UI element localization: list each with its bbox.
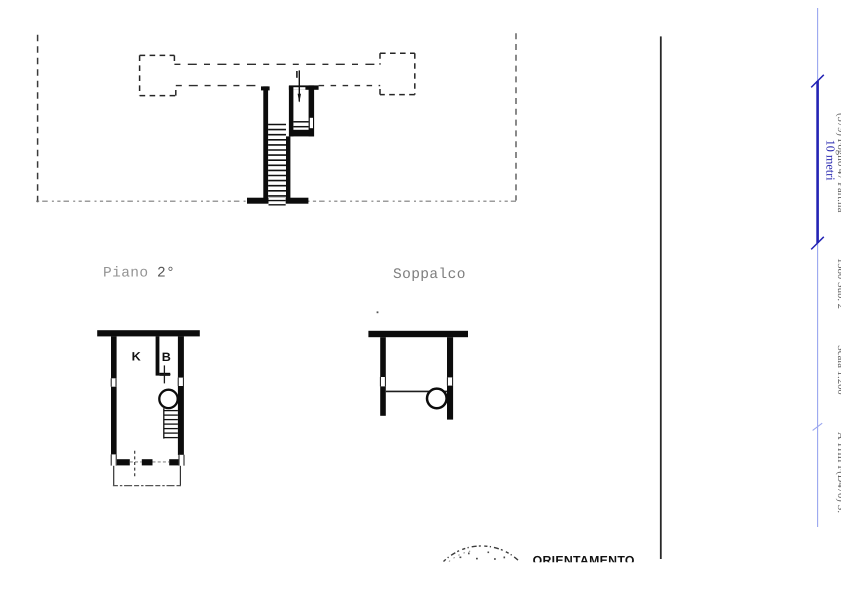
svg-text:(579) Foglio 47 Part.lla: (579) Foglio 47 Part.lla	[835, 113, 841, 213]
svg-text:Piano: Piano	[103, 266, 149, 282]
svg-text:B: B	[162, 350, 171, 363]
svg-text:K: K	[132, 350, 141, 363]
svg-text:Scala 1:200: Scala 1:200	[835, 345, 841, 395]
svg-text:2°: 2°	[157, 266, 175, 282]
svg-text:Soppalco: Soppalco	[393, 267, 466, 283]
svg-text:1380 Sub. 2: 1380 Sub. 2	[835, 258, 841, 309]
svg-text:A THII F(D470) S.: A THII F(D470) S.	[835, 432, 841, 513]
